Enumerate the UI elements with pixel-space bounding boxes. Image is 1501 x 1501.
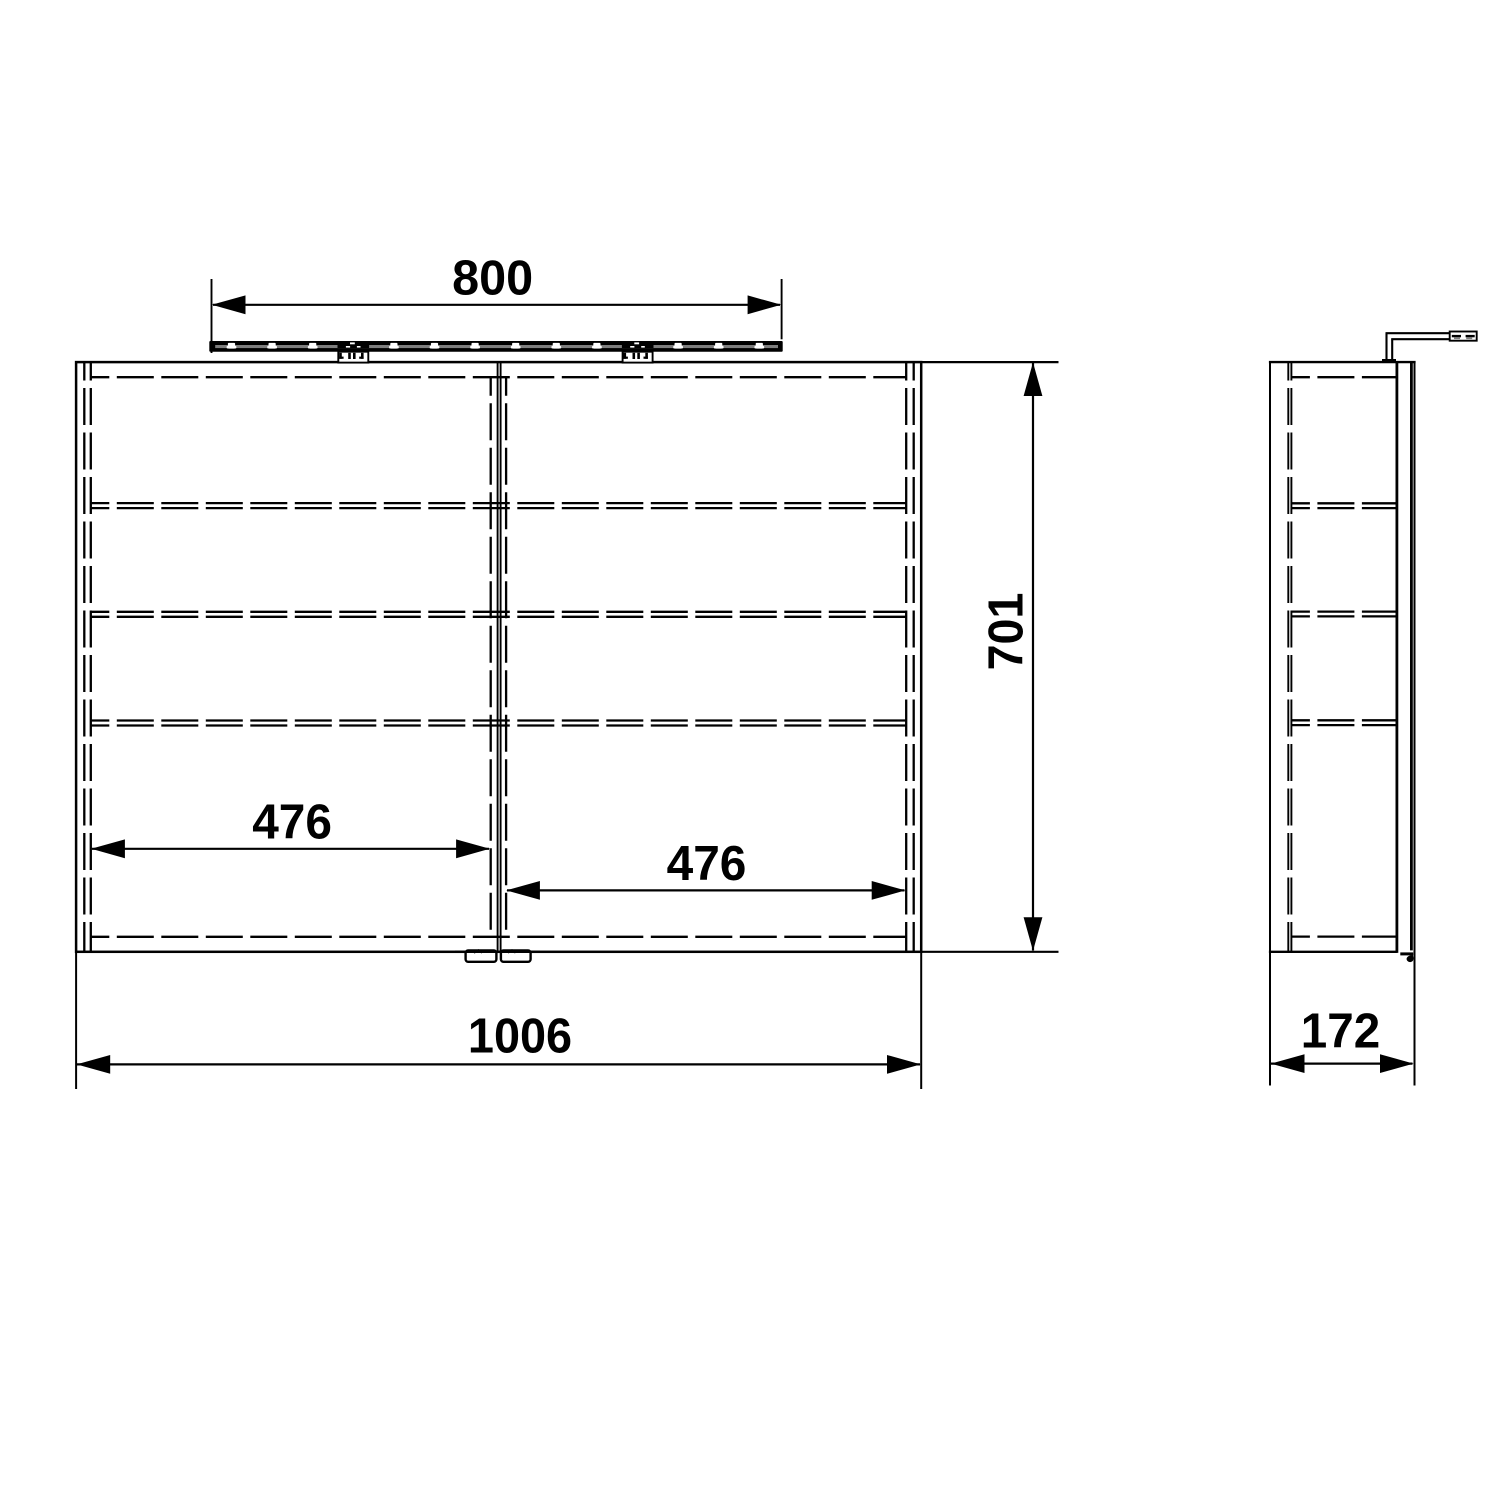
svg-text:172: 172 <box>1301 1004 1380 1059</box>
svg-text:476: 476 <box>252 795 332 850</box>
svg-text:476: 476 <box>667 836 747 891</box>
svg-text:1006: 1006 <box>468 1008 572 1063</box>
svg-text:800: 800 <box>452 250 533 305</box>
svg-text:701: 701 <box>978 593 1033 671</box>
